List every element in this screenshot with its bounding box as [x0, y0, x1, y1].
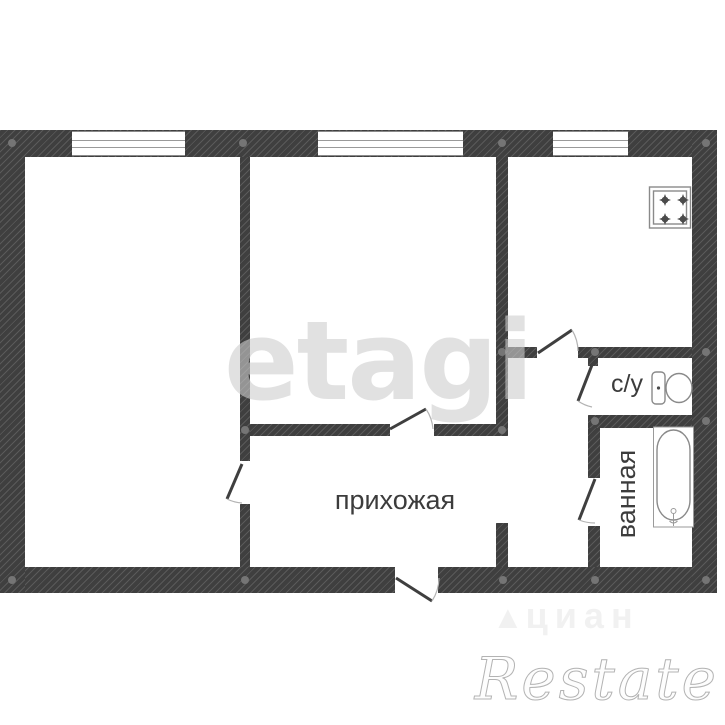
portal-text: циан	[526, 595, 640, 636]
bathroom-label: ванная	[612, 433, 642, 555]
wall-node-dot	[498, 426, 506, 434]
wall-node-dot	[591, 417, 599, 425]
door-arc	[578, 401, 592, 407]
door-leaf	[578, 365, 592, 401]
door-leaf	[579, 479, 595, 520]
door-leaf	[227, 464, 242, 499]
wall-node-dot	[591, 576, 599, 584]
toilet-icon	[652, 372, 692, 404]
door-leaf	[538, 330, 572, 353]
door-swing-room1	[227, 464, 242, 503]
door-arc	[227, 499, 242, 503]
watermark-portal: ▲циан	[492, 598, 640, 634]
door-swing-wc	[578, 365, 592, 407]
door-arc	[432, 578, 439, 601]
wall-node-dot	[702, 139, 710, 147]
wall-node-dot	[239, 139, 247, 147]
door-swing-entrance	[396, 578, 439, 601]
wall-node-dot	[499, 576, 507, 584]
door-swing-kitchen	[538, 330, 578, 353]
wc-label: с/у	[601, 371, 653, 397]
watermark-etagi: etagi	[224, 306, 532, 416]
wall-node-dot	[241, 576, 249, 584]
door-arc	[572, 330, 578, 351]
stove-icon	[650, 187, 691, 228]
door-arc	[579, 520, 595, 523]
wall-node-dot	[702, 348, 710, 356]
wall-node-dot	[8, 576, 16, 584]
door-leaf	[396, 578, 432, 601]
bathtub-icon	[654, 427, 694, 527]
hallway-label: прихожая	[330, 486, 460, 514]
wall-node-dot	[241, 426, 249, 434]
floor-plan: прихожая с/у ванная etagi ▲циан Restate	[0, 0, 725, 725]
wall-node-dot	[702, 417, 710, 425]
portal-logo-icon: ▲	[492, 599, 526, 635]
wall-node-dot	[591, 348, 599, 356]
wall-node-dot	[702, 576, 710, 584]
watermark-restate: Restate	[475, 650, 719, 708]
door-swing-bathroom	[579, 479, 595, 523]
wall-node-dot	[498, 139, 506, 147]
wall-node-dot	[8, 139, 16, 147]
